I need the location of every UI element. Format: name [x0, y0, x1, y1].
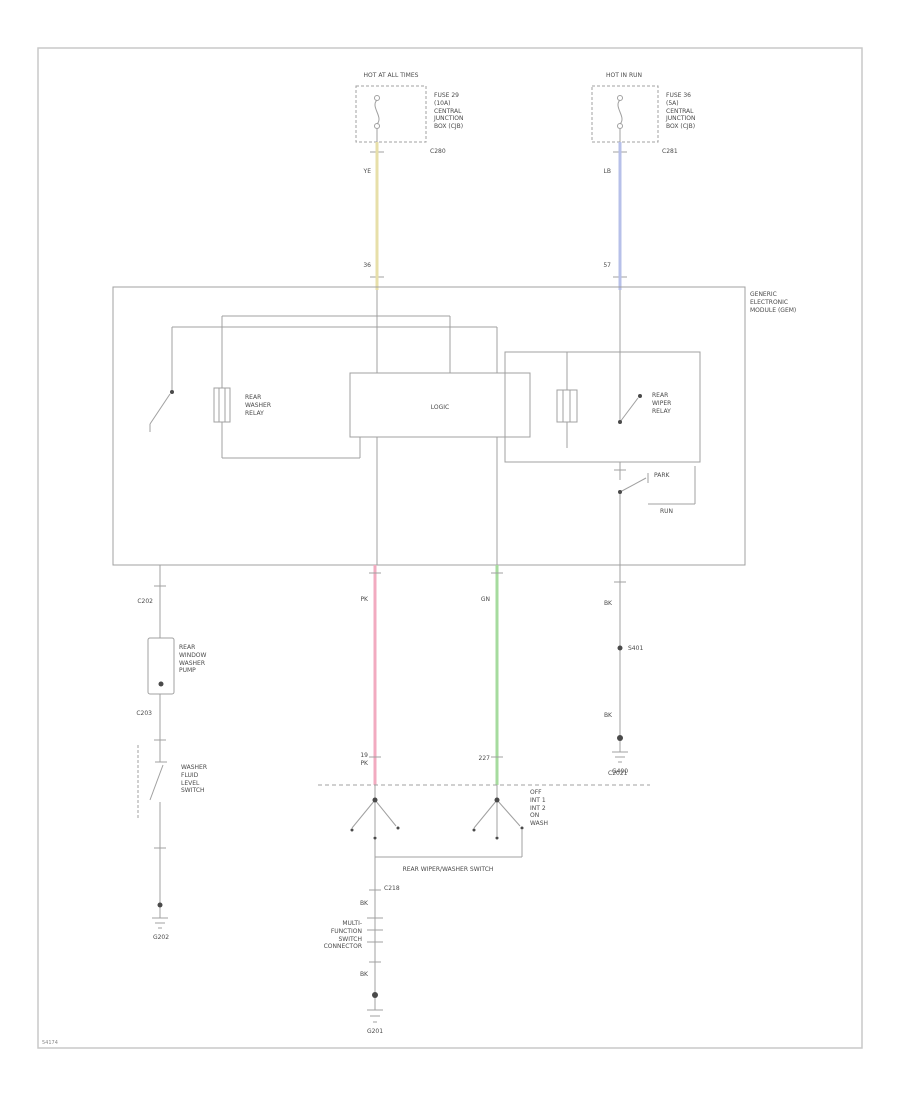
- bottom-wire-color-label-2: BK: [360, 971, 368, 979]
- splice-label: S401: [628, 645, 643, 653]
- blue-wire-color-label: LB: [604, 168, 611, 176]
- splice-dot: [618, 646, 623, 651]
- right-wire-color-label-1: BK: [604, 600, 612, 608]
- fuse-left-label: FUSE 29(10A) CENTRALJUNCTION BOX (CJB): [434, 92, 463, 131]
- switch-assembly-name-label: REAR WIPER/WASHER SWITCH: [403, 866, 494, 874]
- page-frame: [38, 48, 862, 1048]
- switch-positions-list: OFFINT 1 INT 2ON WASH: [530, 789, 548, 828]
- ground-label-bottom: G201: [367, 1028, 383, 1036]
- pink-wire-bottom-label: 19PK: [360, 752, 368, 768]
- inline-connector-label: MULTI-FUNCTION SWITCHCONNECTOR: [324, 920, 362, 951]
- park-pivot-dot: [618, 490, 622, 494]
- diagram-code: 54174: [42, 1040, 58, 1047]
- ground-label-right: G400: [612, 768, 628, 776]
- hot-at-all-times-label: HOT AT ALL TIMES: [364, 72, 419, 80]
- connector-label-left-mid: C203: [136, 710, 152, 718]
- ground-dot-left: [158, 903, 163, 908]
- connector-label-right-fuse: C281: [662, 148, 678, 156]
- connector-label-left-fuse: C280: [430, 148, 446, 156]
- ground-dot-bottom: [372, 992, 378, 998]
- green-wire-color-label: GN: [481, 596, 490, 604]
- module-name-label: GENERICELECTRONIC MODULE (GEM): [750, 291, 796, 314]
- ground-dot-right: [617, 735, 623, 741]
- washer-pump-label: REARWINDOW WASHERPUMP: [179, 644, 206, 675]
- diagram-canvas: [0, 0, 900, 1100]
- run-position-label: RUN: [660, 508, 673, 516]
- pump-motor-dot: [159, 682, 164, 687]
- yellow-wire-circuit-label: 36: [363, 262, 371, 270]
- wiring-diagram-page: HOT AT ALL TIMES FUSE 29(10A) CENTRALJUN…: [0, 0, 900, 1100]
- logic-label: LOGIC: [431, 404, 449, 412]
- green-wire-bottom-label: 227: [479, 755, 490, 763]
- relay-contact-dot: [170, 390, 174, 394]
- relay-pivot-dot: [618, 420, 622, 424]
- relay-tip-dot: [638, 394, 642, 398]
- park-position-label: PARK: [654, 472, 669, 480]
- fluid-level-switch-label: WASHERFLUID LEVELSWITCH: [181, 764, 207, 795]
- ground-label-left: G202: [153, 934, 169, 942]
- pink-wire-color-label: PK: [360, 596, 368, 604]
- wiper-relay-label: REARWIPER RELAY: [652, 392, 671, 415]
- right-wire-color-label-2: BK: [604, 712, 612, 720]
- yellow-wire-color-label: YE: [364, 168, 371, 176]
- blue-wire-circuit-label: 57: [603, 262, 611, 270]
- fuse-right-label: FUSE 36(5A) CENTRALJUNCTION BOX (CJB): [666, 92, 695, 131]
- washer-relay-label: REARWASHER RELAY: [245, 394, 271, 417]
- connector-label-bottom: C218: [384, 885, 400, 893]
- bottom-wire-color-label-1: BK: [360, 900, 368, 908]
- hot-in-run-label: HOT IN RUN: [606, 72, 642, 80]
- connector-label-left-top: C202: [137, 598, 153, 606]
